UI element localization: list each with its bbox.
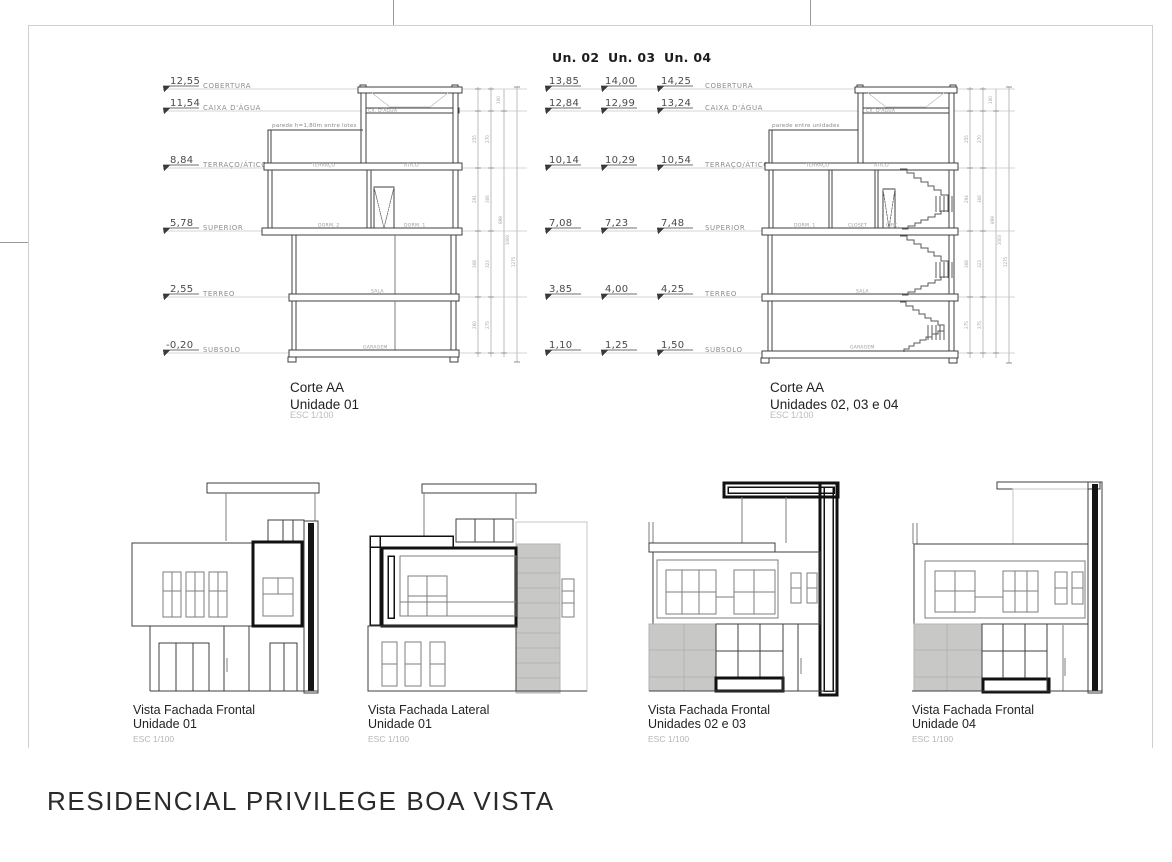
level-value: 11,54 (170, 98, 200, 109)
level-value: 14,00 (605, 76, 635, 87)
dim-text: 100 (988, 96, 993, 104)
level-name: TERREO (704, 290, 737, 298)
room-label-closet: CLOSET (848, 223, 867, 229)
level-value: 7,48 (661, 218, 684, 229)
room-label-cx-dagua: CX. D'ÁGUA (368, 107, 398, 114)
wall-note: parede entre unidades (772, 123, 840, 129)
drawing-sheet: 12,55 11,54 8,84 5,78 2,55 -0,20 COBERTU… (0, 0, 1172, 862)
level-value: 8,84 (170, 155, 193, 166)
room-label-dorm2: DORM. 2 (318, 223, 340, 229)
level-value: 1,50 (661, 340, 684, 351)
dim-text: 1275 (1003, 256, 1008, 267)
dim-text: 294 (964, 195, 969, 203)
unit-header-03: Un. 03 (608, 50, 655, 65)
corte-unidades-02-03-04: Un. 02 Un. 03 Un. 04 (545, 50, 1015, 363)
wall-note: parede h=1,80m entre lotes (272, 123, 357, 129)
facade-caption-line2: Unidades 02 e 03 (648, 718, 770, 732)
dim-text: 323 (485, 260, 490, 268)
room-label-circ: CIRC. (886, 223, 899, 229)
level-value: 13,24 (661, 98, 691, 109)
door-swing (883, 189, 895, 228)
stairs-linework (900, 169, 952, 352)
room-label-sala: SALA (856, 289, 869, 295)
dim-text: 308 (472, 260, 477, 268)
dim-text: 1000 (505, 234, 510, 245)
dim-text: 291 (472, 195, 477, 203)
level-name: SUBSOLO (705, 346, 743, 354)
dim-text: 255 (472, 135, 477, 143)
facade-caption-scale: ESC 1/100 (133, 733, 255, 747)
level-value: 12,99 (605, 98, 635, 109)
level-value: 7,08 (549, 218, 572, 229)
level-value: 7,23 (605, 218, 628, 229)
facade-caption-scale: ESC 1/100 (648, 733, 770, 747)
level-name: TERREO (202, 290, 235, 298)
level-name: TERRAÇO/ÁTICO (202, 160, 267, 169)
level-name: SUPERIOR (203, 224, 243, 232)
dim-text: 1003 (997, 234, 1002, 245)
room-label-atico: ÁTICO (874, 162, 889, 169)
unit-header-02: Un. 02 (552, 50, 599, 65)
project-title: RESIDENCIAL PRIVILEGE BOA VISTA (47, 786, 555, 817)
level-value: -0,20 (166, 340, 193, 351)
facade-caption-line2: Unidade 01 (368, 718, 489, 732)
dim-text: 899 (498, 216, 503, 224)
facade-caption-scale: ESC 1/100 (912, 733, 1034, 747)
room-label-cx-dagua: CX. D'ÁGUA (866, 107, 896, 114)
corte-01-caption: Corte AA Unidade 01 ESC 1/100 (290, 379, 359, 420)
room-label-terraco: TERRAÇO (805, 163, 829, 169)
level-value: 4,25 (661, 284, 684, 295)
dim-text: 1275 (511, 256, 516, 267)
facade-caption-line1: Vista Fachada Frontal (133, 704, 255, 718)
room-label-sala: SALA (371, 289, 384, 295)
facade-caption-frontal-01: Vista Fachada Frontal Unidade 01 ESC 1/1… (133, 704, 255, 747)
facade-frontal-unidades-02-03 (649, 483, 838, 695)
facade-caption-line1: Vista Fachada Lateral (368, 704, 489, 718)
level-value: 5,78 (170, 218, 193, 229)
level-value: 1,25 (605, 340, 628, 351)
facade-caption-scale: ESC 1/100 (368, 733, 489, 747)
facade-frontal-unidade-04 (912, 482, 1102, 693)
level-value: 1,10 (549, 340, 572, 351)
room-label-garagem: GARAGEM (850, 345, 875, 351)
level-value: 3,85 (549, 284, 572, 295)
dim-text: 275 (485, 321, 490, 329)
dim-text: 270 (977, 135, 982, 143)
room-label-terraco: TERRAÇO (311, 163, 335, 169)
dim-text: 275 (977, 321, 982, 329)
level-name: COBERTURA (203, 82, 251, 90)
level-value: 12,55 (170, 76, 200, 87)
level-value: 2,55 (170, 284, 193, 295)
level-value: 14,25 (661, 76, 691, 87)
level-value: 4,00 (605, 284, 628, 295)
dim-text: 255 (964, 135, 969, 143)
corte-caption-line1: Corte AA (770, 379, 898, 396)
level-name: CAIXA D'ÁGUA (203, 103, 261, 112)
unit-header-04: Un. 04 (664, 50, 711, 65)
facade-caption-frontal-04: Vista Fachada Frontal Unidade 04 ESC 1/1… (912, 704, 1034, 747)
facade-frontal-unidade-01 (132, 483, 319, 693)
room-label-dorm1: DORM. 1 (404, 223, 426, 229)
facade-caption-line1: Vista Fachada Frontal (648, 704, 770, 718)
dim-text: 260 (472, 321, 477, 329)
facade-caption-lateral-01: Vista Fachada Lateral Unidade 01 ESC 1/1… (368, 704, 489, 747)
dim-text: 275 (964, 321, 969, 329)
dim-text: 306 (977, 195, 982, 203)
facade-caption-frontal-02-03: Vista Fachada Frontal Unidades 02 e 03 E… (648, 704, 770, 747)
dimension-ticks (967, 87, 1012, 363)
level-value: 12,84 (549, 98, 579, 109)
dim-text: 323 (977, 260, 982, 268)
dim-text: 100 (496, 96, 501, 104)
room-label-garagem: GARAGEM (363, 345, 388, 351)
room-label-atico: ÁTICO (404, 162, 419, 169)
level-value: 10,29 (605, 155, 635, 166)
level-name: SUBSOLO (203, 346, 241, 354)
facade-caption-line2: Unidade 04 (912, 718, 1034, 732)
room-label-dorm1: DORM. 1 (794, 223, 816, 229)
level-value: 10,54 (661, 155, 691, 166)
level-name: COBERTURA (705, 82, 753, 90)
dim-text: 306 (485, 195, 490, 203)
level-name: SUPERIOR (705, 224, 745, 232)
corte-unidade-01: 12,55 11,54 8,84 5,78 2,55 -0,20 COBERTU… (163, 76, 527, 362)
facade-caption-line2: Unidade 01 (133, 718, 255, 732)
level-name: CAIXA D'ÁGUA (705, 103, 763, 112)
facade-caption-line1: Vista Fachada Frontal (912, 704, 1034, 718)
corte-02-03-04-caption: Corte AA Unidades 02, 03 e 04 ESC 1/100 (770, 379, 898, 420)
dim-text: 308 (964, 260, 969, 268)
facade-lateral-unidade-01 (368, 484, 587, 693)
level-value: 13,85 (549, 76, 579, 87)
level-value: 10,14 (549, 155, 579, 166)
level-name: TERRAÇO/ÁTICO (704, 160, 769, 169)
dim-text: 899 (990, 216, 995, 224)
dim-text: 270 (485, 135, 490, 143)
corte-caption-line1: Corte AA (290, 379, 359, 396)
door-swing (374, 187, 394, 228)
